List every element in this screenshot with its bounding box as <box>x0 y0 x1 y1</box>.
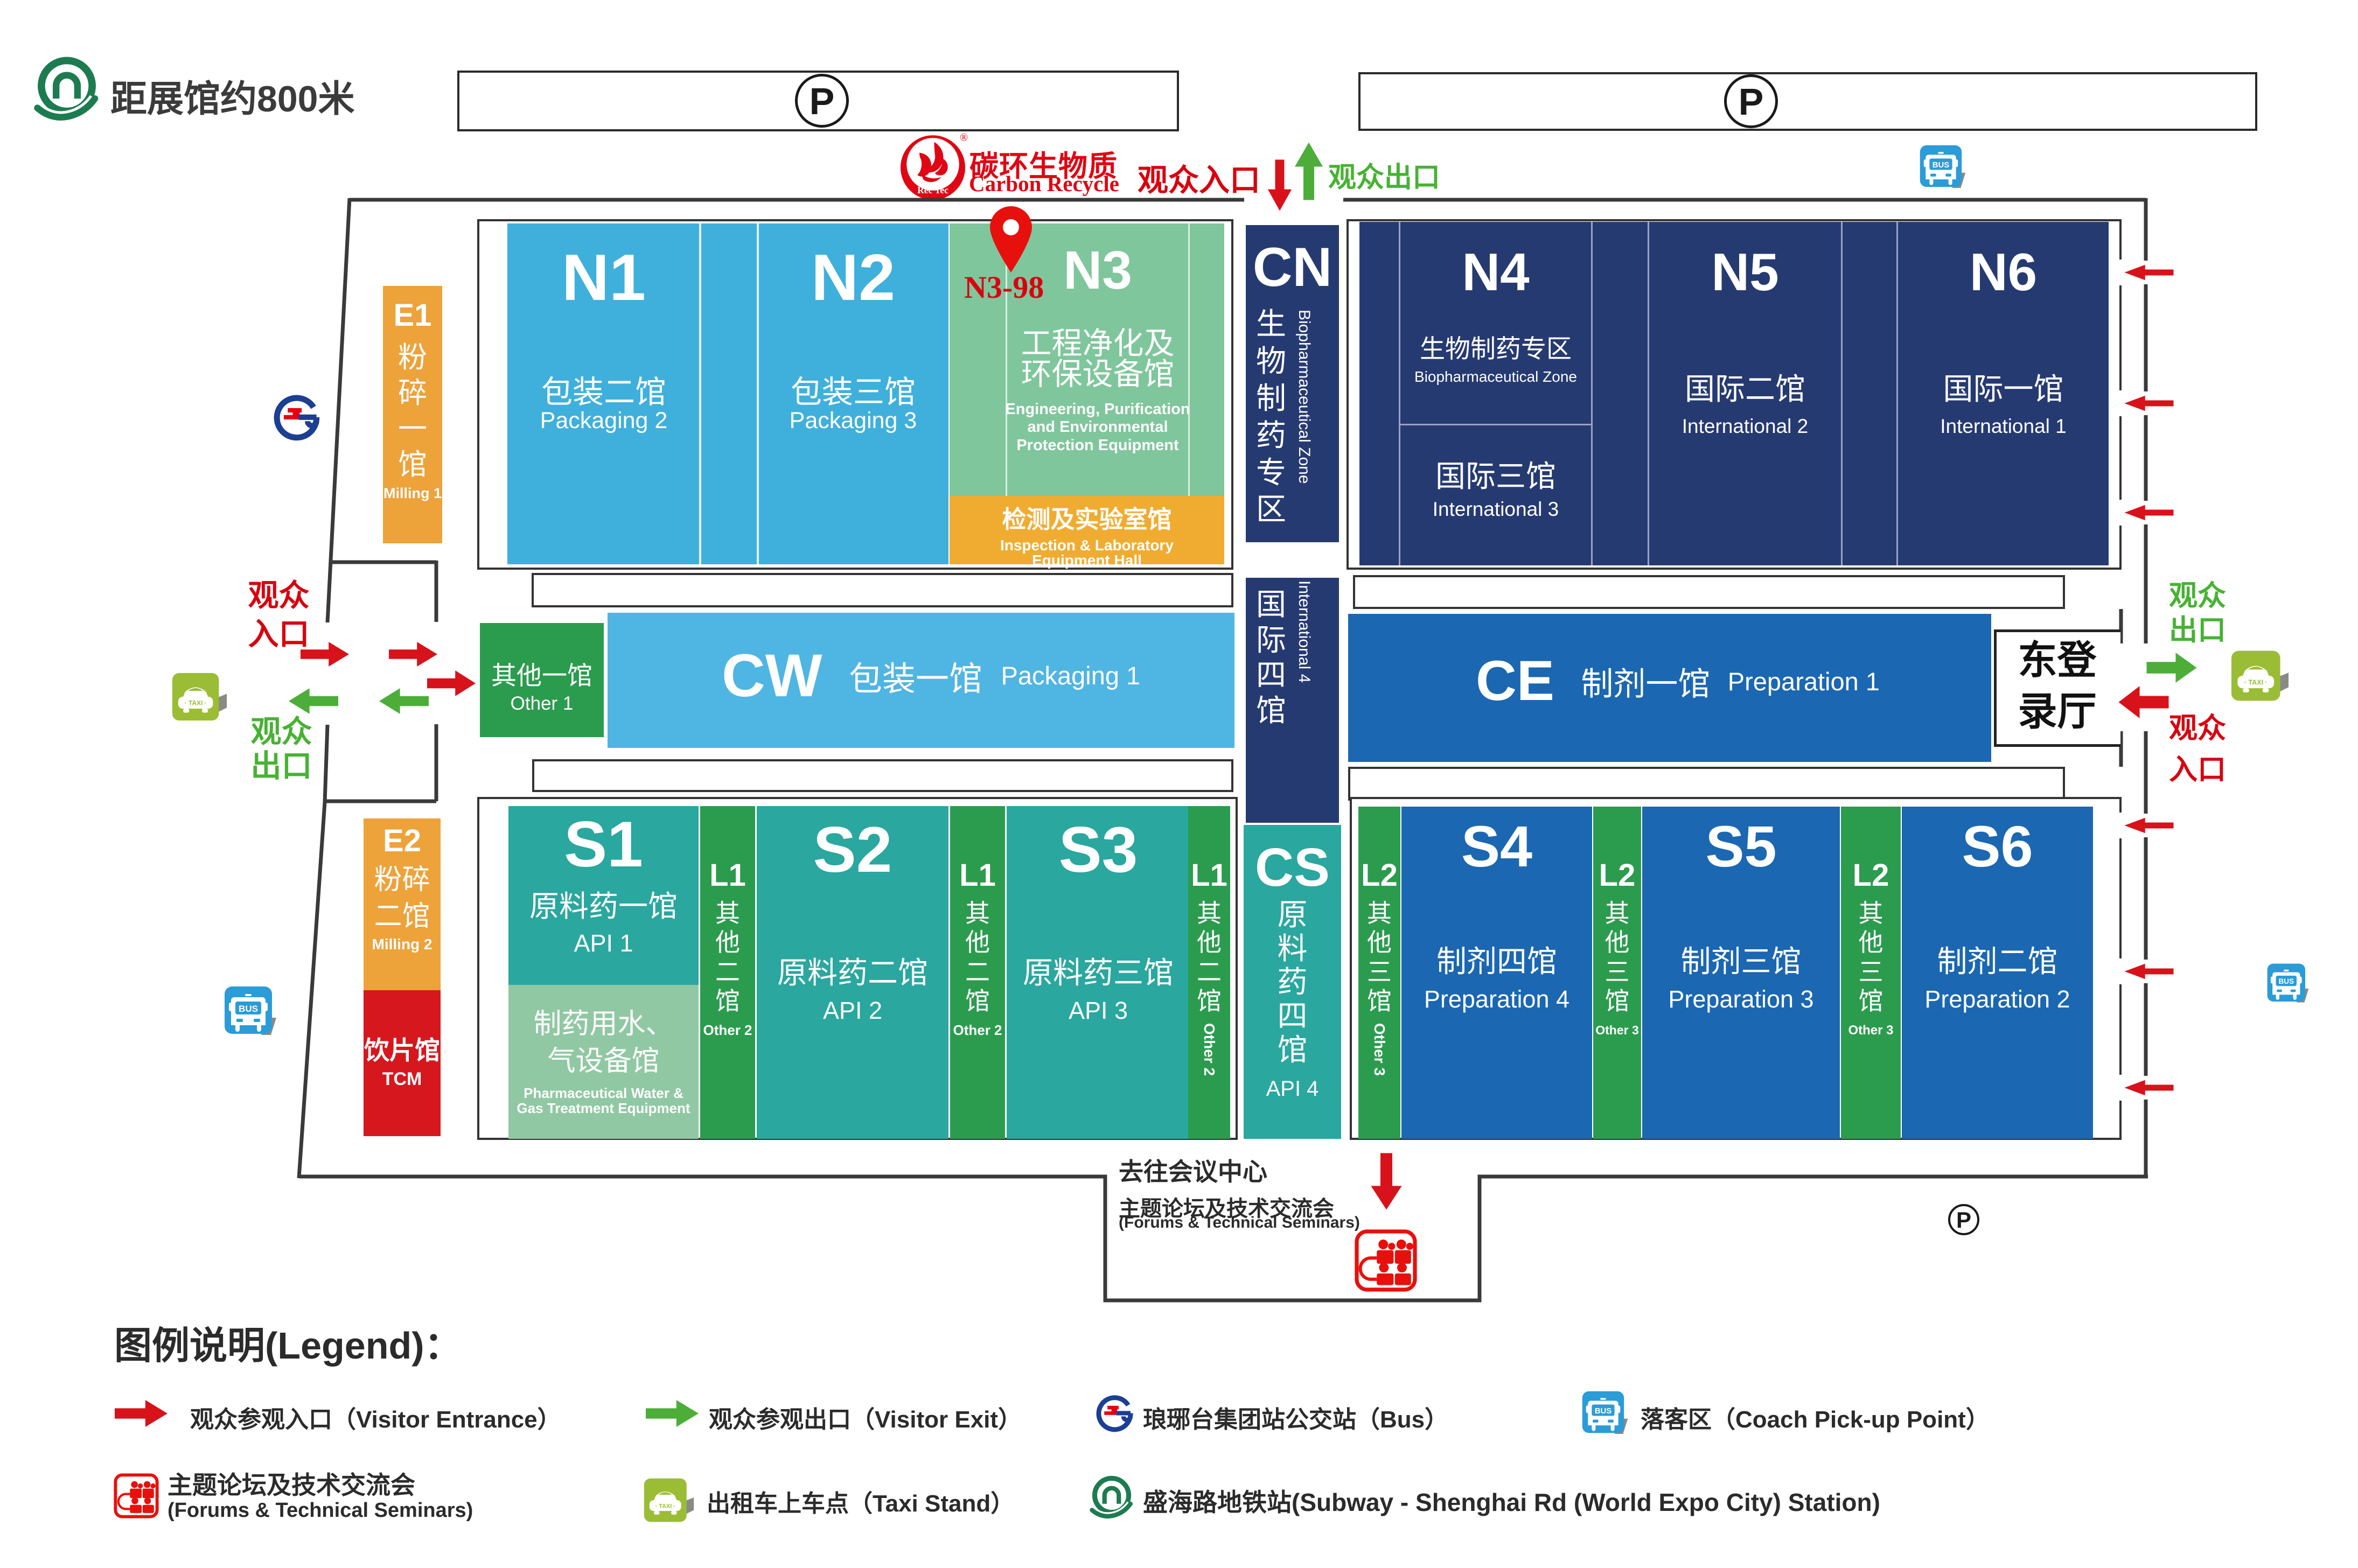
svg-text:· TAXI ·: · TAXI · <box>655 1503 675 1509</box>
svg-text:BUS: BUS <box>1595 1406 1612 1416</box>
